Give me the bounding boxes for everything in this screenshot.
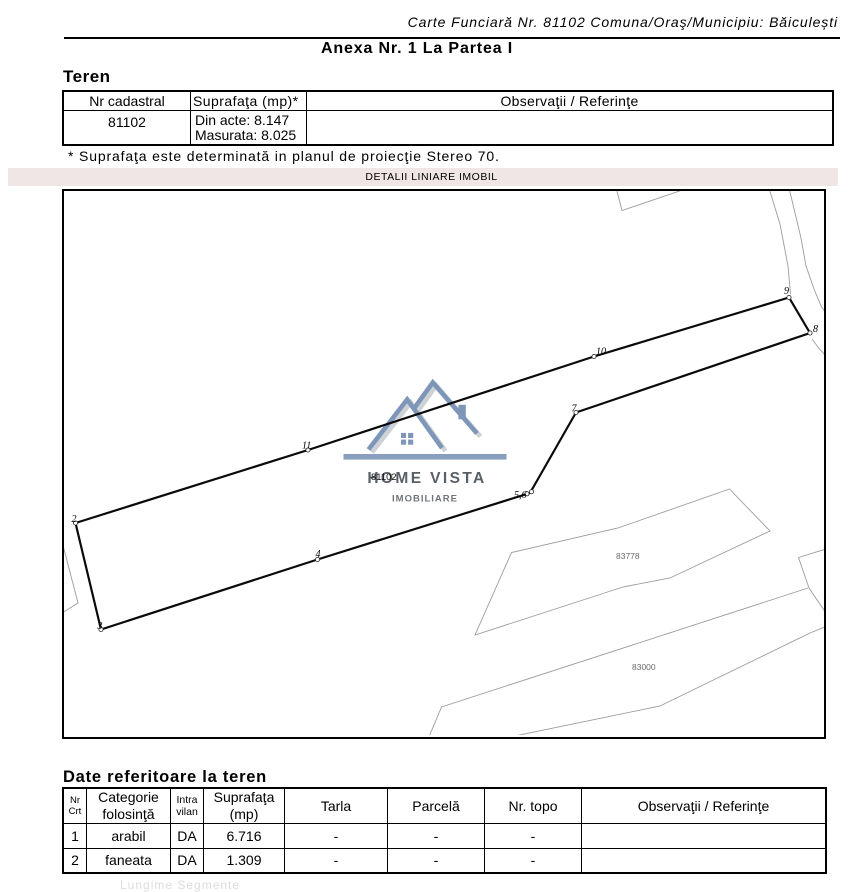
svg-text:2: 2 — [72, 514, 77, 525]
svg-text:10: 10 — [596, 347, 606, 358]
svg-text:83000: 83000 — [632, 662, 656, 672]
svg-text:4: 4 — [316, 549, 321, 560]
svg-text:5,6: 5,6 — [514, 490, 527, 501]
svg-text:9: 9 — [784, 286, 789, 297]
svg-text:IMOBILIARE: IMOBILIARE — [392, 494, 458, 505]
svg-text:8: 8 — [813, 324, 818, 335]
svg-text:3: 3 — [97, 621, 103, 632]
svg-text:83778: 83778 — [616, 551, 640, 561]
svg-text:11: 11 — [302, 441, 311, 452]
svg-text:81102: 81102 — [371, 472, 397, 483]
